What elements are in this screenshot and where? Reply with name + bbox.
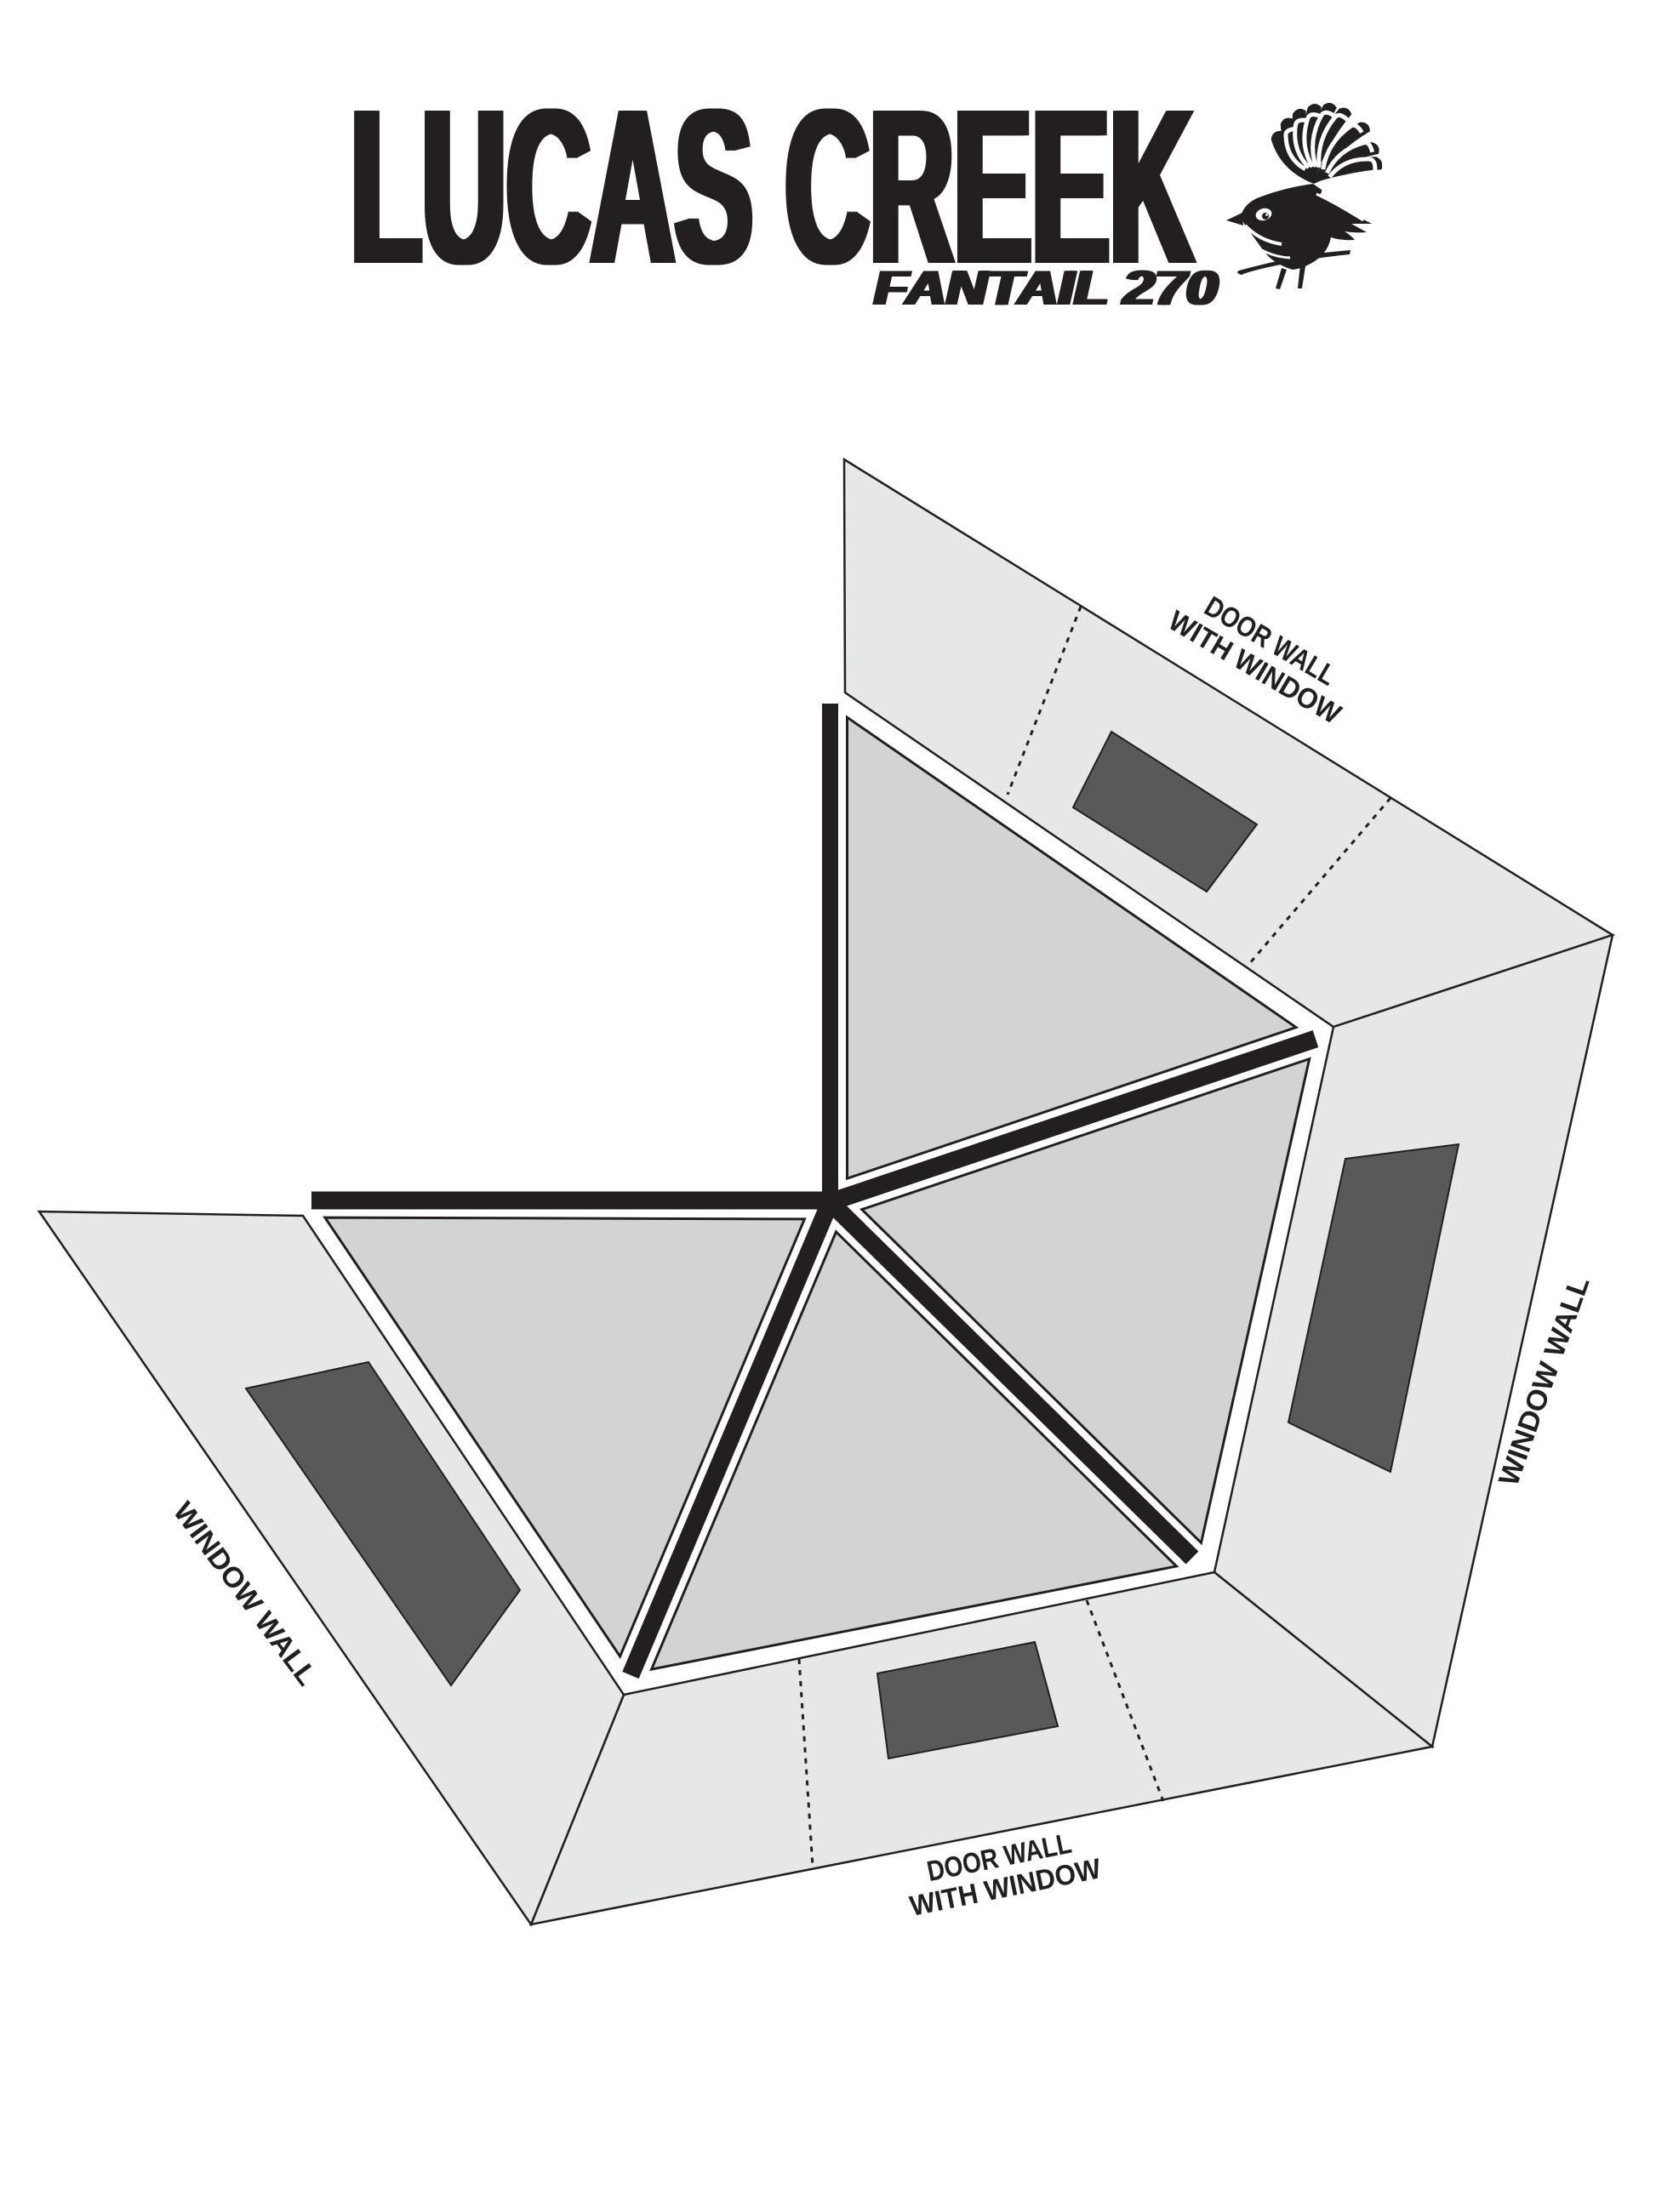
- svg-text:FANTAIL 270: FANTAIL 270: [877, 261, 1220, 316]
